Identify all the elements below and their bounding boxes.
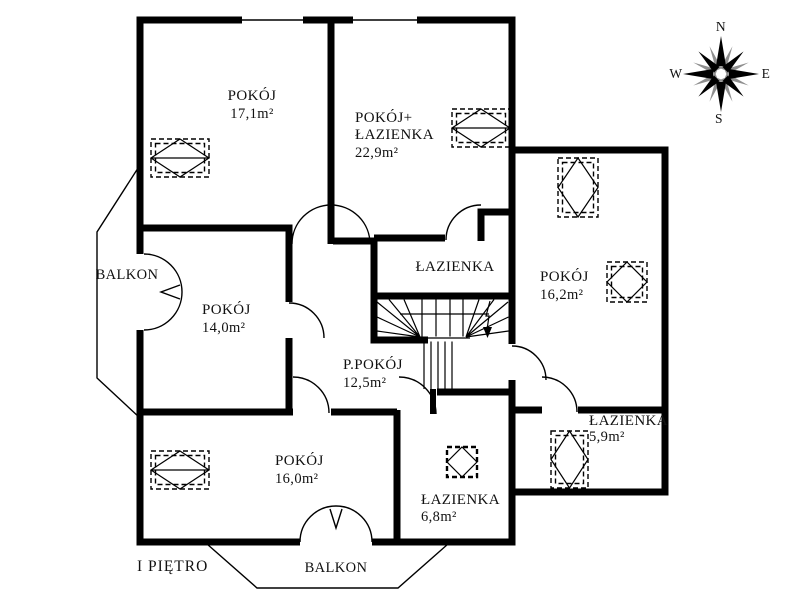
floor-plan: N E S W POKÓJ 17,1m² POKÓJ+ ŁAZIENKA 22,… xyxy=(0,0,800,600)
room-area-lazienka-6-8: 6,8m² xyxy=(421,509,457,525)
door-pokoj-16-0 xyxy=(293,377,329,413)
compass-south-label: S xyxy=(715,111,723,126)
door-pokoj-14 xyxy=(289,303,324,338)
bed-icon xyxy=(151,451,209,489)
balcony-left-label: BALKON xyxy=(96,267,159,283)
balcony-bottom-french-door xyxy=(300,506,372,542)
room-label-pokoj-lazienka-line1: POKÓJ+ xyxy=(355,109,413,126)
staircase xyxy=(377,299,509,389)
shower-icon xyxy=(447,447,477,477)
balcony-left-outline xyxy=(97,165,140,418)
bed-icon xyxy=(558,158,598,217)
door-pokoj-16-2 xyxy=(512,346,546,380)
balcony-left-french-door xyxy=(144,254,182,330)
interior-walls xyxy=(140,20,669,546)
room-area-pokoj-16-0: 16,0m² xyxy=(275,471,319,487)
room-label-lazienka-middle: ŁAZIENKA xyxy=(415,259,494,275)
room-area-pokoj-14: 14,0m² xyxy=(202,320,246,336)
compass-east-label: E xyxy=(762,66,771,81)
room-label-p-pokoj: P.POKÓJ xyxy=(343,356,403,373)
door-lazienka-middle xyxy=(446,205,481,240)
room-label-pokoj-17: POKÓJ xyxy=(228,87,277,104)
room-area-lazienka-5-9: 5,9m² xyxy=(589,429,625,445)
table-icon xyxy=(607,262,647,302)
compass-rose: N E S W xyxy=(669,19,770,126)
room-area-pokoj-lazienka: 22,9m² xyxy=(355,145,399,161)
stair-lower-flight xyxy=(424,342,452,390)
floor-title: I PIĘTRO xyxy=(137,558,208,575)
room-label-lazienka-5-9: ŁAZIENKA xyxy=(589,413,668,429)
floor-plan-drawing: N E S W POKÓJ 17,1m² POKÓJ+ ŁAZIENKA 22,… xyxy=(0,0,800,600)
room-label-pokoj-14: POKÓJ xyxy=(202,301,251,318)
stair-winders-left xyxy=(377,300,420,338)
bed-icon xyxy=(452,109,510,147)
room-label-pokoj-16-2: POKÓJ xyxy=(540,268,589,285)
room-label-pokoj-16-0: POKÓJ xyxy=(275,452,324,469)
bed-icon xyxy=(151,139,209,177)
room-label-pokoj-lazienka-line2: ŁAZIENKA xyxy=(355,127,434,143)
compass-west-label: W xyxy=(669,66,682,81)
door-lazienka-5-9 xyxy=(542,377,577,412)
balcony-bottom-label: BALKON xyxy=(305,560,368,576)
compass-star xyxy=(683,36,759,112)
room-area-pokoj-16-2: 16,2m² xyxy=(540,287,584,303)
bathtub-icon xyxy=(551,431,588,488)
room-area-p-pokoj: 12,5m² xyxy=(343,375,387,391)
room-label-lazienka-6-8: ŁAZIENKA xyxy=(421,492,500,508)
compass-north-label: N xyxy=(716,19,726,34)
room-area-pokoj-17: 17,1m² xyxy=(230,106,274,122)
